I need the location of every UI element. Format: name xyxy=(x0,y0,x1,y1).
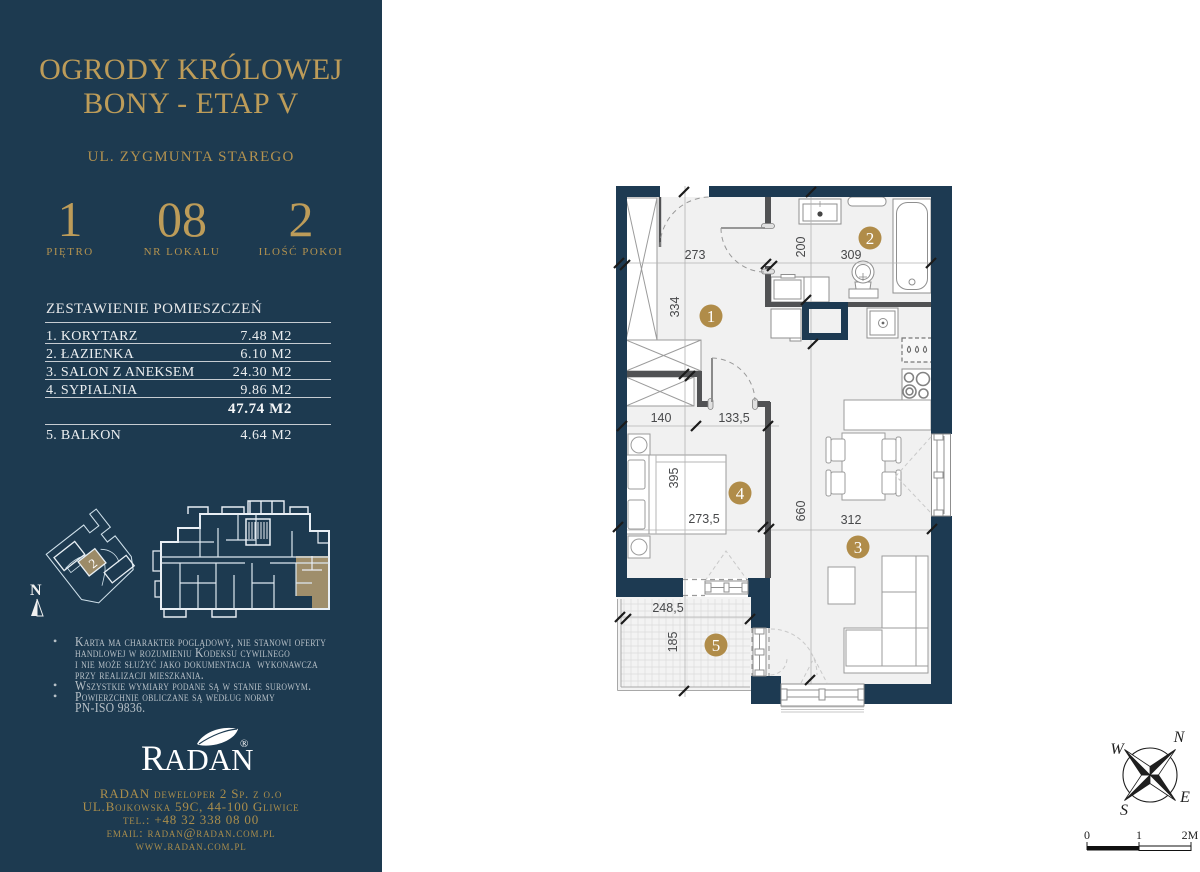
svg-text:185: 185 xyxy=(666,632,680,653)
svg-text:3: 3 xyxy=(854,538,863,557)
svg-text:200: 200 xyxy=(794,237,808,258)
svg-text:133,5: 133,5 xyxy=(718,411,749,425)
svg-text:1: 1 xyxy=(707,307,716,326)
svg-text:309: 309 xyxy=(841,248,862,262)
svg-text:248,5: 248,5 xyxy=(652,601,683,615)
svg-text:4: 4 xyxy=(736,484,745,503)
svg-text:E: E xyxy=(1179,789,1190,806)
svg-text:0: 0 xyxy=(1084,828,1090,842)
svg-text:334: 334 xyxy=(668,297,682,318)
svg-text:2: 2 xyxy=(866,229,875,248)
svg-text:395: 395 xyxy=(667,468,681,489)
svg-text:273: 273 xyxy=(685,248,706,262)
svg-text:660: 660 xyxy=(794,501,808,522)
svg-text:W: W xyxy=(1110,741,1125,758)
svg-text:273,5: 273,5 xyxy=(688,512,719,526)
svg-text:140: 140 xyxy=(651,411,672,425)
svg-text:N: N xyxy=(1173,729,1186,746)
svg-text:5: 5 xyxy=(712,636,721,655)
svg-text:312: 312 xyxy=(841,513,862,527)
svg-text:S: S xyxy=(1120,802,1128,819)
svg-text:2M: 2M xyxy=(1182,828,1199,842)
svg-text:1: 1 xyxy=(1136,828,1142,842)
